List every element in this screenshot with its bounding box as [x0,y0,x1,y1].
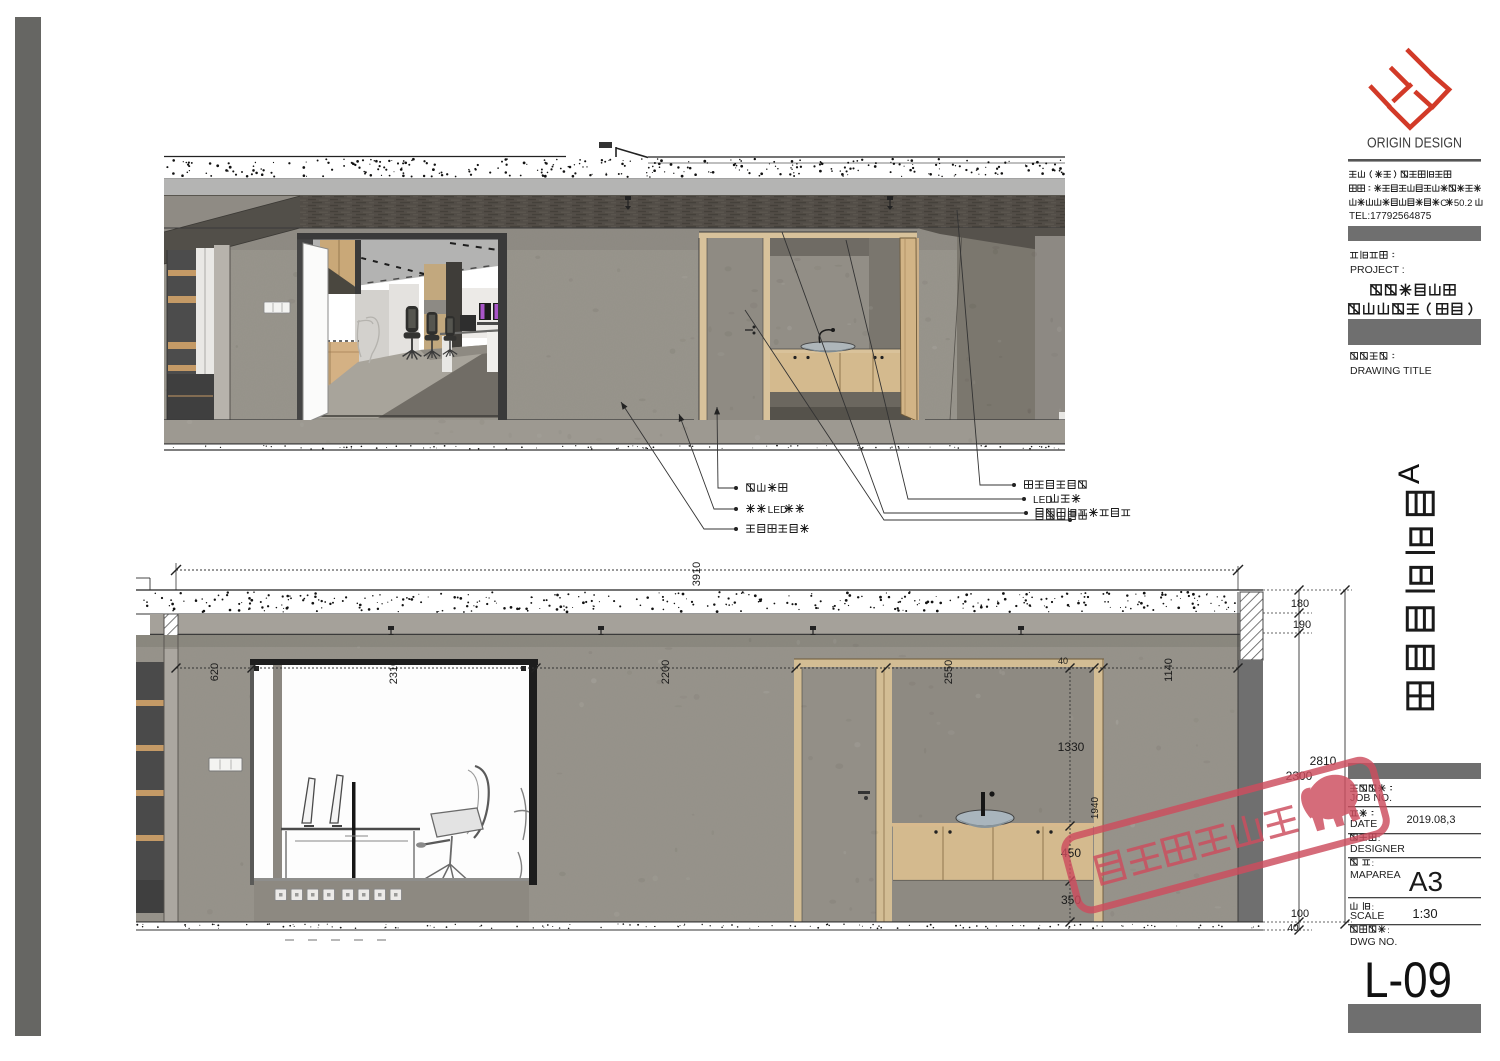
svg-text:A: A [1393,464,1426,484]
svg-text::: : [1372,858,1374,868]
svg-text:50.2: 50.2 [1454,198,1473,209]
svg-text:L-09: L-09 [1364,952,1452,1008]
svg-text:TEL:17792564875: TEL:17792564875 [1349,211,1432,222]
svg-text:DWG NO.: DWG NO. [1350,936,1397,948]
svg-text:620: 620 [209,663,221,681]
svg-text:LED: LED [768,505,788,516]
svg-text:2550: 2550 [943,660,955,684]
svg-text:C: C [1440,198,1447,209]
svg-text:ORIGIN DESIGN: ORIGIN DESIGN [1367,135,1462,152]
svg-text:2019.08,3: 2019.08,3 [1407,814,1456,826]
svg-text:A3: A3 [1409,866,1443,897]
svg-text:SCALE: SCALE [1350,910,1384,922]
svg-text:DRAWING TITLE: DRAWING TITLE [1350,365,1432,377]
svg-text:40: 40 [1058,656,1068,666]
svg-text:40: 40 [1287,923,1299,934]
svg-text:190: 190 [1293,619,1311,631]
svg-text:MAPAREA: MAPAREA [1350,869,1401,881]
svg-text:180: 180 [1291,598,1309,610]
svg-text:100: 100 [1291,908,1309,920]
svg-text:DESIGNER: DESIGNER [1350,843,1405,855]
svg-text:3910: 3910 [691,562,703,586]
svg-text:2310: 2310 [388,660,400,684]
svg-text:1940: 1940 [1090,796,1101,819]
svg-text:LED: LED [1033,495,1053,506]
svg-text:1330: 1330 [1058,740,1085,754]
svg-text:PROJECT :: PROJECT : [1350,264,1405,276]
svg-text::: : [1387,925,1389,935]
svg-text:1:30: 1:30 [1412,906,1437,921]
svg-text:1140: 1140 [1163,658,1175,682]
svg-text:2200: 2200 [660,660,672,684]
